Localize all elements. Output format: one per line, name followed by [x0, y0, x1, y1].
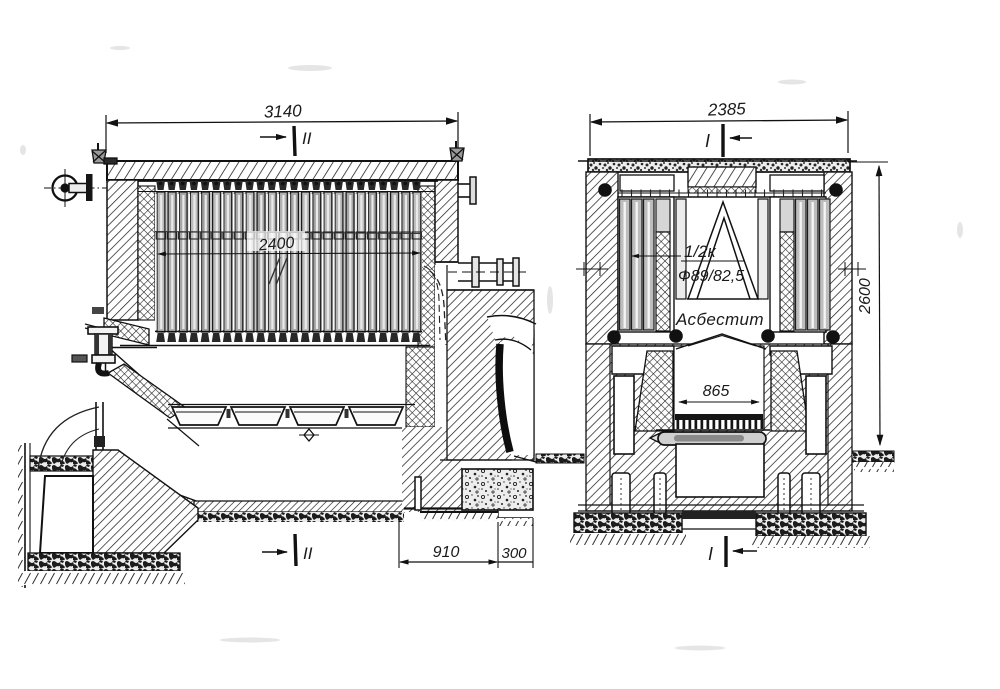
svg-text:II: II — [302, 129, 312, 148]
svg-text:910: 910 — [433, 544, 460, 561]
svg-text:II: II — [303, 544, 313, 563]
svg-text:Ф89/82,5: Ф89/82,5 — [678, 268, 744, 285]
svg-text:1/2к: 1/2к — [684, 242, 717, 261]
svg-text:I: I — [708, 544, 713, 564]
svg-text:2400: 2400 — [257, 234, 295, 254]
svg-text:Асбестит: Асбестит — [675, 310, 764, 329]
svg-text:865: 865 — [703, 383, 730, 400]
svg-text:I: I — [705, 131, 710, 151]
svg-text:2385: 2385 — [707, 99, 747, 119]
svg-text:3140: 3140 — [264, 101, 303, 121]
svg-text:300: 300 — [501, 545, 527, 562]
svg-text:2600: 2600 — [857, 278, 874, 315]
